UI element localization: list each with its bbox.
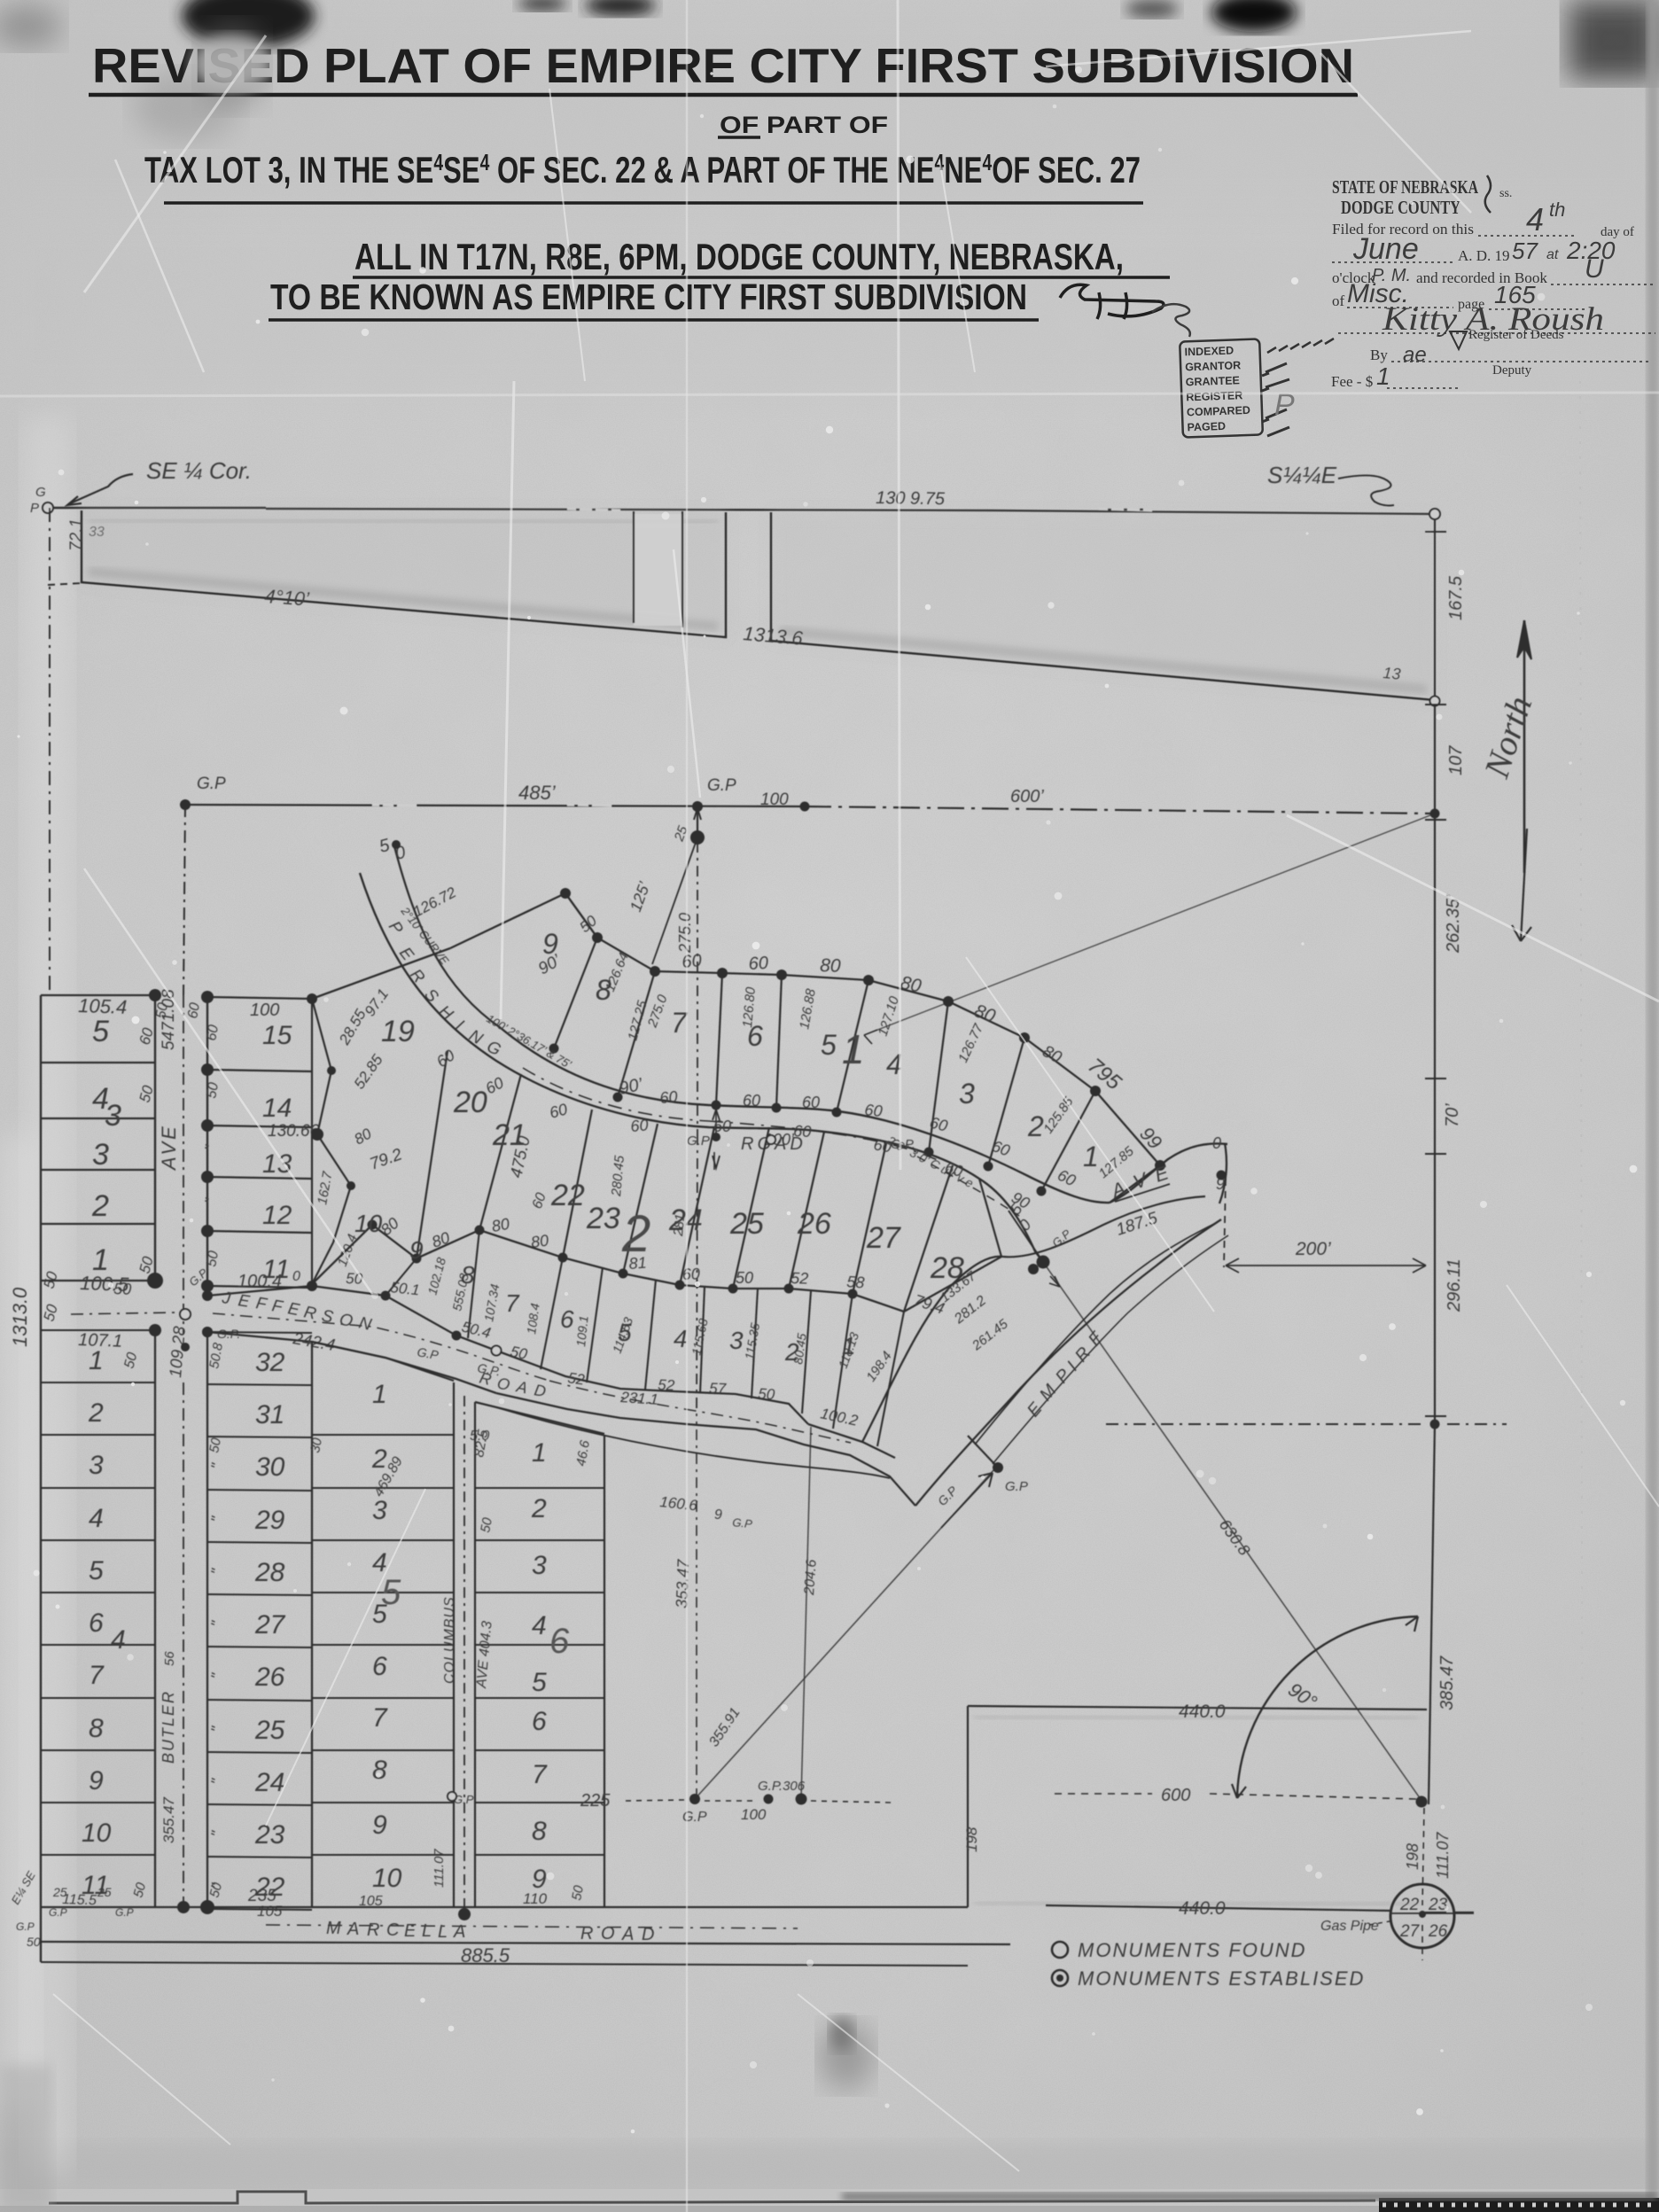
svg-text:3: 3 (729, 1327, 744, 1354)
svg-text:10: 10 (354, 1210, 383, 1237)
svg-text:130.66: 130.66 (268, 1122, 320, 1141)
svg-text:60: 60 (802, 1094, 820, 1111)
svg-text:8: 8 (372, 1756, 387, 1785)
svg-text:TO BE KNOWN AS EMPIRE CITY FI: TO BE KNOWN AS EMPIRE CITY FIRST SUBDIVI… (270, 276, 1027, 317)
svg-text:60: 60 (793, 1122, 812, 1141)
svg-text:50: 50 (113, 1280, 132, 1298)
svg-text:REVISED PLAT OF EMPIRE CITY: REVISED PLAT OF EMPIRE CITY FIRST SUBDIV… (92, 38, 1354, 93)
svg-text:ALL IN T17N, R8E, 6PM, DODGE C: ALL IN T17N, R8E, 6PM, DODGE COUNTY, NEB… (354, 236, 1124, 277)
svg-text:50: 50 (153, 1001, 171, 1020)
svg-text:200’: 200’ (1295, 1239, 1331, 1259)
svg-text:A. D. 19: A. D. 19 (1458, 247, 1510, 264)
svg-text:A: A (347, 1920, 359, 1939)
svg-text:TAX LOT 3, IN THE SE4SE4 OF SE: TAX LOT 3, IN THE SE4SE4 OF SEC. 22 & A … (144, 149, 1141, 191)
svg-text:GRANTEE: GRANTEE (1186, 374, 1241, 388)
svg-text:Deputy: Deputy (1492, 363, 1532, 378)
svg-text:100: 100 (760, 791, 789, 809)
svg-text:60: 60 (872, 1135, 892, 1156)
svg-text:G.P: G.P (16, 1920, 35, 1933)
svg-text:29: 29 (254, 1506, 285, 1535)
svg-text:22: 22 (550, 1179, 585, 1212)
svg-text:355.47: 355.47 (160, 1796, 177, 1843)
svg-text:15: 15 (262, 1021, 292, 1050)
svg-text:G.P: G.P (732, 1515, 753, 1530)
svg-text:5: 5 (89, 1556, 104, 1585)
svg-text:4°10’: 4°10’ (264, 585, 311, 611)
svg-text:26: 26 (797, 1207, 831, 1241)
svg-text:STATE OF NEBRASKA: STATE OF NEBRASKA (1332, 176, 1479, 198)
svg-text:57: 57 (709, 1380, 727, 1398)
svg-text:25: 25 (254, 1716, 285, 1745)
svg-text:111.07: 111.07 (1434, 1832, 1452, 1879)
svg-text:50: 50 (758, 1385, 776, 1403)
svg-text:Gas Pipe: Gas Pipe (1320, 1919, 1379, 1934)
svg-text:BUTLER: BUTLER (160, 1690, 177, 1764)
svg-text:60: 60 (682, 951, 703, 972)
svg-text:5: 5 (92, 1015, 109, 1048)
svg-text:5: 5 (381, 1573, 401, 1612)
svg-text:at: at (1546, 247, 1559, 262)
svg-text:9: 9 (409, 1236, 424, 1264)
svg-text:S¼¼E: S¼¼E (1267, 462, 1337, 488)
svg-text:72.1: 72.1 (67, 518, 86, 551)
svg-text:9: 9 (89, 1766, 104, 1795)
svg-text:ss.: ss. (1499, 187, 1512, 200)
svg-text:3: 3 (92, 1138, 109, 1172)
svg-text:100: 100 (250, 1001, 279, 1020)
svg-text:4: 4 (111, 1625, 126, 1655)
svg-text:5: 5 (821, 1029, 837, 1061)
svg-text:MONUMENTS ESTABLISED: MONUMENTS ESTABLISED (1078, 1967, 1365, 1990)
svg-text:600’: 600’ (1010, 787, 1044, 806)
svg-text:600: 600 (1161, 1786, 1190, 1805)
svg-text:353.47: 353.47 (673, 1558, 692, 1608)
svg-text:225: 225 (580, 1791, 611, 1811)
svg-text:3: 3 (105, 1099, 121, 1133)
svg-text:3: 3 (532, 1551, 547, 1580)
svg-text:M: M (326, 1919, 341, 1938)
svg-text:60: 60 (748, 954, 768, 974)
svg-text:100.4: 100.4 (238, 1272, 282, 1291)
svg-text:110: 110 (523, 1890, 548, 1907)
svg-text:GRANTOR: GRANTOR (1185, 359, 1241, 373)
svg-text:80: 80 (530, 1231, 550, 1251)
svg-text:25: 25 (52, 1885, 67, 1899)
svg-text:60: 60 (682, 1265, 700, 1283)
svg-text:50: 50 (204, 1081, 222, 1100)
svg-text:60: 60 (743, 1092, 760, 1110)
svg-text:115.5: 115.5 (62, 1892, 97, 1908)
svg-text:1: 1 (1083, 1141, 1099, 1172)
svg-text:275.0: 275.0 (676, 913, 694, 954)
svg-text:Register of Deeds: Register of Deeds (1468, 328, 1564, 342)
svg-text:107.1: 107.1 (78, 1330, 123, 1351)
svg-text:1: 1 (1376, 362, 1390, 390)
svg-text:P: P (30, 501, 39, 516)
svg-text:204.6: 204.6 (802, 1559, 820, 1596)
svg-text:100: 100 (741, 1806, 767, 1823)
svg-text:231.1: 231.1 (619, 1389, 659, 1408)
svg-text:A: A (453, 1922, 465, 1942)
svg-text:6: 6 (532, 1707, 547, 1736)
svg-text:10: 10 (82, 1819, 112, 1848)
svg-text:30: 30 (255, 1453, 285, 1482)
svg-text:th: th (1549, 199, 1565, 221)
svg-text:3: 3 (89, 1451, 104, 1480)
svg-text:U: U (1585, 254, 1604, 284)
svg-text:REGISTER: REGISTER (1186, 389, 1242, 403)
svg-text:26: 26 (254, 1663, 285, 1692)
svg-text:12: 12 (262, 1201, 292, 1230)
svg-text:A: A (621, 1925, 634, 1944)
svg-text:D: D (642, 1925, 654, 1944)
svg-text:198: 198 (1404, 1843, 1421, 1870)
svg-text:440.0: 440.0 (1179, 1898, 1226, 1919)
svg-text:23: 23 (586, 1202, 620, 1235)
svg-text:8: 8 (532, 1817, 547, 1846)
svg-text:G.P.: G.P. (217, 1327, 240, 1341)
svg-text:58: 58 (846, 1273, 865, 1291)
svg-text:25: 25 (729, 1207, 764, 1241)
svg-text:R: R (580, 1924, 593, 1943)
svg-text:INDEXED: INDEXED (1184, 344, 1234, 358)
svg-text:4: 4 (1526, 201, 1544, 238)
svg-text:22: 22 (1399, 1896, 1420, 1914)
svg-text:296.11: 296.11 (1445, 1258, 1464, 1312)
svg-text:24: 24 (254, 1768, 284, 1797)
svg-text:19: 19 (381, 1015, 415, 1048)
svg-text:DODGE COUNTY: DODGE COUNTY (1341, 197, 1460, 218)
svg-text:32: 32 (255, 1348, 285, 1377)
svg-text:52: 52 (658, 1376, 675, 1394)
svg-text:1313.0: 1313.0 (9, 1287, 31, 1347)
svg-text:1: 1 (89, 1346, 104, 1375)
svg-text:7: 7 (532, 1760, 548, 1789)
svg-text:Fee - $: Fee - $ (1331, 373, 1373, 390)
svg-text:60: 60 (713, 1118, 731, 1135)
svg-text:7: 7 (671, 1007, 688, 1039)
svg-text:6: 6 (549, 1622, 570, 1661)
svg-text:O: O (601, 1924, 615, 1943)
svg-text:57: 57 (1512, 238, 1538, 264)
svg-text:G.P: G.P (197, 775, 226, 793)
svg-text:27: 27 (1399, 1922, 1421, 1941)
svg-text:3: 3 (959, 1078, 975, 1110)
svg-text:81: 81 (628, 1254, 647, 1273)
svg-text:G.P.306: G.P.306 (758, 1779, 806, 1794)
svg-text:COMPARED: COMPARED (1187, 404, 1250, 419)
svg-text:14: 14 (262, 1094, 292, 1123)
svg-text:60: 60 (630, 1116, 650, 1135)
svg-text:7: 7 (89, 1661, 105, 1690)
svg-text:2: 2 (91, 1189, 109, 1223)
svg-text:50: 50 (204, 1250, 222, 1268)
svg-text:130 9.75: 130 9.75 (876, 488, 946, 509)
svg-text:PAGED: PAGED (1187, 420, 1226, 434)
svg-text:L: L (422, 1921, 432, 1941)
svg-text:C: C (386, 1920, 400, 1940)
svg-text:MONUMENTS FOUND: MONUMENTS FOUND (1078, 1939, 1307, 1961)
svg-text:60: 60 (204, 1024, 222, 1042)
svg-text:0: 0 (292, 1269, 300, 1284)
svg-text:G.P: G.P (707, 776, 736, 795)
svg-text:OF PART OF: OF PART OF (720, 112, 888, 138)
svg-text:L: L (438, 1922, 448, 1942)
svg-text:27: 27 (254, 1610, 286, 1640)
svg-text:G.P: G.P (49, 1906, 67, 1919)
svg-text:2: 2 (88, 1398, 104, 1428)
svg-text:105: 105 (257, 1903, 283, 1920)
svg-text:7: 7 (372, 1703, 388, 1733)
svg-text:105.4: 105.4 (78, 994, 128, 1018)
svg-text:52: 52 (791, 1269, 809, 1288)
svg-text:AVE: AVE (158, 1124, 180, 1172)
svg-text:107: 107 (1446, 745, 1466, 775)
svg-text:6: 6 (89, 1608, 104, 1638)
svg-text:60: 60 (185, 1001, 203, 1020)
svg-text:440.0: 440.0 (1179, 1702, 1226, 1722)
svg-text:4: 4 (89, 1504, 104, 1533)
svg-text:60: 60 (659, 1087, 679, 1107)
svg-text:27: 27 (866, 1221, 901, 1255)
svg-text:167.5: 167.5 (1446, 575, 1466, 620)
svg-text:485’: 485’ (518, 782, 557, 804)
svg-text:198: 198 (963, 1826, 980, 1852)
svg-text:G.P: G.P (687, 1133, 710, 1149)
svg-text:60: 60 (864, 1101, 884, 1120)
svg-text:385.47: 385.47 (1437, 1655, 1457, 1710)
svg-text:20: 20 (453, 1086, 487, 1119)
svg-text:28: 28 (254, 1558, 285, 1587)
svg-text:50.1: 50.1 (390, 1279, 421, 1298)
svg-text:80: 80 (490, 1215, 510, 1235)
svg-text:G.P: G.P (115, 1906, 134, 1919)
svg-text:25: 25 (97, 1885, 112, 1899)
svg-text:June: June (1352, 232, 1419, 266)
svg-text:111.07: 111.07 (432, 1849, 447, 1888)
svg-text:0: 0 (1212, 1134, 1221, 1152)
svg-text:9: 9 (372, 1811, 387, 1840)
svg-text:2: 2 (531, 1494, 547, 1523)
svg-text:By: By (1370, 347, 1388, 363)
svg-text:E: E (404, 1921, 417, 1941)
svg-text:13: 13 (1382, 664, 1402, 683)
svg-text:G.P: G.P (1005, 1479, 1028, 1494)
svg-text:6: 6 (560, 1305, 574, 1333)
svg-text:G: G (35, 485, 46, 500)
svg-text:50: 50 (736, 1269, 753, 1287)
svg-text:5: 5 (532, 1668, 547, 1697)
svg-text:6: 6 (372, 1652, 387, 1681)
svg-text:7: 7 (505, 1289, 520, 1317)
svg-text:281: 281 (671, 1213, 688, 1237)
svg-text:31: 31 (255, 1400, 284, 1429)
svg-text:23: 23 (254, 1820, 285, 1850)
svg-text:R: R (367, 1920, 379, 1940)
svg-text:1: 1 (372, 1380, 387, 1409)
svg-text:9: 9 (714, 1507, 722, 1523)
svg-text:ae: ae (1403, 343, 1427, 367)
svg-text:1: 1 (842, 1026, 865, 1072)
svg-text:3: 3 (372, 1496, 387, 1525)
svg-text:10: 10 (372, 1864, 402, 1893)
svg-text:50: 50 (27, 1935, 41, 1949)
svg-text:1: 1 (532, 1438, 547, 1468)
svg-text:70’: 70’ (1443, 1103, 1462, 1127)
svg-text:COLUMBUS: COLUMBUS (442, 1596, 457, 1684)
svg-text:4: 4 (674, 1325, 688, 1352)
svg-text:8: 8 (89, 1714, 104, 1743)
svg-text:of: of (1332, 292, 1345, 309)
svg-text:56: 56 (162, 1651, 177, 1666)
svg-text:23: 23 (1428, 1896, 1448, 1914)
svg-text:SE ¼ Cor.: SE ¼ Cor. (146, 457, 252, 484)
svg-text:4: 4 (532, 1611, 547, 1640)
svg-text:26: 26 (1428, 1922, 1448, 1941)
svg-text:80: 80 (820, 955, 841, 977)
